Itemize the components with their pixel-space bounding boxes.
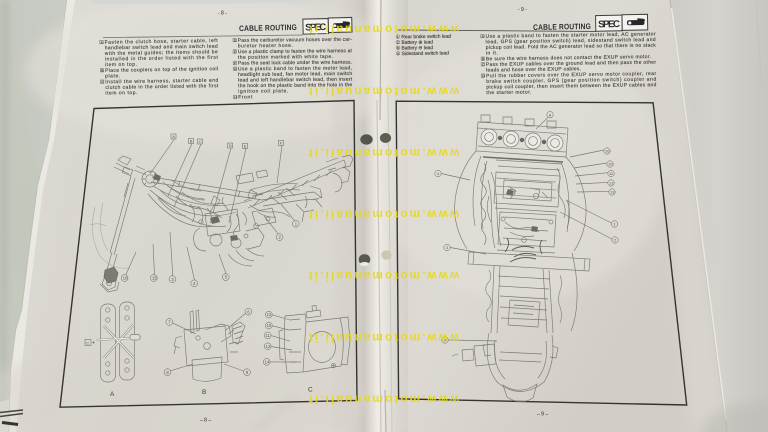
svg-text:13: 13: [267, 312, 272, 317]
svg-text:– 9 –: – 9 –: [537, 412, 548, 418]
svg-text:www.motomanuali.it: www.motomanuali.it: [307, 208, 460, 222]
svg-text:www.motomanuali.it: www.motomanuali.it: [307, 331, 460, 345]
svg-text:C: C: [86, 340, 89, 345]
svg-text:Battery ⊕ lead: Battery ⊕ lead: [401, 39, 433, 45]
svg-text:12: 12: [266, 344, 271, 349]
svg-text:D: D: [229, 143, 232, 148]
svg-text:in it.: in it.: [486, 50, 498, 56]
svg-text:10: 10: [267, 323, 272, 328]
svg-text:plate.: plate.: [105, 73, 120, 79]
svg-text:Pass the carburetor vacuum hos: Pass the carburetor vacuum hoses over th…: [238, 37, 352, 44]
svg-text:A: A: [172, 134, 175, 139]
svg-text:10: 10: [608, 162, 613, 167]
svg-text:F: F: [234, 61, 236, 65]
svg-text:CABLE ROUTING: CABLE ROUTING: [533, 22, 591, 32]
svg-text:Battery ⊖ lead: Battery ⊖ lead: [401, 45, 433, 51]
svg-text:SPEC: SPEC: [598, 19, 620, 30]
svg-text:C: C: [199, 139, 202, 144]
svg-text:2: 2: [397, 41, 399, 45]
svg-text:11: 11: [266, 333, 271, 338]
svg-text:- 8 -: - 8 -: [218, 11, 227, 17]
svg-text:www.motomanuali.it: www.motomanuali.it: [307, 393, 460, 407]
svg-text:14: 14: [265, 360, 270, 365]
svg-text:E: E: [244, 143, 247, 148]
svg-text:– 8 –: – 8 –: [200, 418, 211, 424]
svg-text:Use a plastic clamp to fasten: Use a plastic clamp to fasten the wire h…: [238, 48, 353, 55]
svg-text:C: C: [308, 387, 313, 394]
svg-text:4: 4: [397, 52, 399, 56]
svg-text:item on top.: item on top.: [105, 62, 137, 69]
svg-text:the position marked with white: the position marked with white tape.: [238, 54, 333, 61]
svg-text:www.motomanuali.it: www.motomanuali.it: [307, 146, 460, 160]
svg-text:- 9 -: - 9 -: [518, 7, 527, 13]
svg-text:B: B: [190, 139, 193, 144]
svg-text:www.motomanuali.it: www.motomanuali.it: [307, 269, 460, 283]
svg-text:16: 16: [605, 149, 610, 154]
svg-text:B: B: [202, 389, 206, 396]
svg-text:15: 15: [152, 276, 157, 281]
svg-text:www.motomanuali.it: www.motomanuali.it: [307, 84, 460, 98]
svg-text:A: A: [110, 391, 115, 398]
svg-text:10: 10: [123, 276, 128, 281]
svg-text:12: 12: [609, 181, 614, 186]
svg-text:3: 3: [397, 46, 399, 50]
svg-text:13: 13: [610, 190, 615, 195]
svg-text:www.motomanuali.it: www.motomanuali.it: [307, 23, 460, 37]
svg-text:A: A: [549, 112, 552, 117]
svg-text:ignition coil plate.: ignition coil plate.: [238, 88, 288, 94]
svg-text:Front: Front: [238, 94, 253, 100]
svg-text:the starter motor.: the starter motor.: [486, 89, 531, 96]
svg-text:CABLE ROUTING: CABLE ROUTING: [239, 23, 297, 33]
svg-text:G: G: [234, 67, 237, 71]
svg-text:Sidestand switch lead: Sidestand switch lead: [402, 50, 450, 57]
svg-text:buretor heater hose.: buretor heater hose.: [238, 43, 293, 49]
svg-text:Pass the seat lock cable under: Pass the seat lock cable under the wire …: [238, 60, 352, 67]
svg-text:item on top.: item on top.: [105, 90, 137, 97]
